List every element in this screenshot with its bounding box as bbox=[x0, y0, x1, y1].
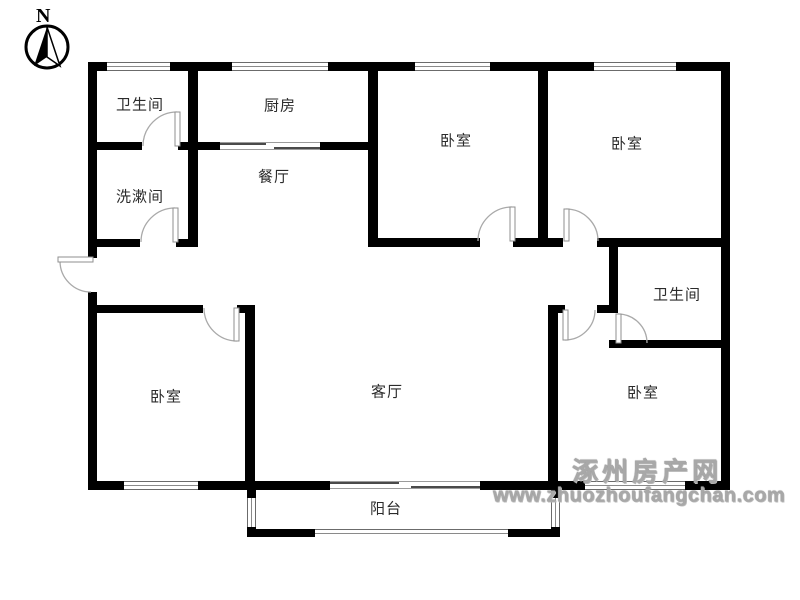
bathroom-right-door-arc bbox=[618, 314, 647, 343]
wall bbox=[176, 239, 198, 247]
bedroom-top-right-door-arc bbox=[566, 209, 598, 241]
window bbox=[594, 62, 676, 71]
wall bbox=[198, 481, 330, 490]
bedroom-top-middle-door-leaf bbox=[510, 207, 515, 241]
wall bbox=[508, 529, 560, 537]
window bbox=[232, 62, 328, 71]
room-label-bedroom-top-right: 卧室 bbox=[611, 133, 643, 154]
wall bbox=[548, 313, 558, 481]
wall bbox=[188, 62, 198, 247]
bedroom-bottom-right-door-leaf bbox=[563, 310, 568, 340]
window bbox=[124, 481, 198, 490]
bedroom-bottom-right-door-arc bbox=[565, 310, 595, 340]
window bbox=[247, 498, 256, 527]
bedroom-top-right-door-leaf bbox=[564, 209, 569, 241]
washroom-door-leaf bbox=[173, 208, 178, 242]
compass-needle-light bbox=[47, 27, 60, 66]
room-label-kitchen: 厨房 bbox=[264, 95, 296, 116]
wall bbox=[609, 340, 730, 348]
sliding-door-kitchen bbox=[220, 142, 320, 150]
wall bbox=[609, 247, 618, 313]
room-label-washroom: 洗漱间 bbox=[116, 186, 164, 207]
compass-needle-dark bbox=[34, 27, 47, 66]
room-label-balcony: 阳台 bbox=[370, 498, 402, 519]
room-label-bathroom-right: 卫生间 bbox=[653, 284, 701, 305]
room-label-bedroom-bottom-left: 卧室 bbox=[150, 386, 182, 407]
watermark-site-name: 涿州房产网 bbox=[572, 452, 722, 489]
wall bbox=[88, 481, 124, 490]
wall bbox=[170, 62, 232, 71]
bedroom-top-middle-door-arc bbox=[478, 207, 512, 241]
room-label-bedroom-top-middle: 卧室 bbox=[440, 130, 472, 151]
wall bbox=[538, 62, 548, 238]
room-label-bathroom-top: 卫生间 bbox=[116, 94, 164, 115]
wall bbox=[88, 239, 140, 247]
window bbox=[107, 62, 170, 71]
compass-circle bbox=[26, 26, 68, 68]
room-label-living: 客厅 bbox=[371, 381, 403, 402]
bathroom-right-door-leaf bbox=[616, 314, 621, 343]
north-label: N bbox=[36, 5, 50, 28]
bathroom-top-door-leaf bbox=[175, 112, 180, 146]
wall bbox=[237, 305, 255, 313]
wall bbox=[721, 62, 730, 490]
watermark-site-url: www.zhuozhoufangchan.com bbox=[493, 485, 785, 508]
wall bbox=[320, 142, 368, 150]
wall bbox=[513, 238, 563, 247]
wall bbox=[597, 305, 618, 313]
wall bbox=[178, 142, 220, 150]
entrance-door-arc bbox=[60, 261, 91, 292]
window bbox=[315, 529, 508, 537]
washroom-door-arc bbox=[141, 208, 175, 242]
room-label-dining: 餐厅 bbox=[258, 166, 290, 187]
window bbox=[415, 62, 490, 71]
wall bbox=[245, 313, 255, 481]
room-label-bedroom-bottom-right: 卧室 bbox=[627, 382, 659, 403]
floor-plan: N 卫生间 洗漱间 厨房 餐厅 卧室 卧室 卫生间 卧室 客厅 卧室 阳台 涿州… bbox=[0, 0, 800, 600]
wall bbox=[88, 142, 142, 150]
wall bbox=[548, 305, 565, 313]
wall bbox=[88, 62, 97, 258]
sliding-door-balcony bbox=[330, 481, 480, 489]
bedroom-bottom-left-door-arc bbox=[204, 308, 237, 341]
wall bbox=[92, 305, 203, 313]
wall bbox=[88, 292, 97, 490]
wall bbox=[247, 529, 315, 537]
wall bbox=[368, 62, 378, 247]
wall bbox=[368, 238, 480, 247]
bathroom-top-door-arc bbox=[143, 112, 177, 146]
wall bbox=[247, 490, 256, 498]
wall bbox=[597, 238, 730, 247]
